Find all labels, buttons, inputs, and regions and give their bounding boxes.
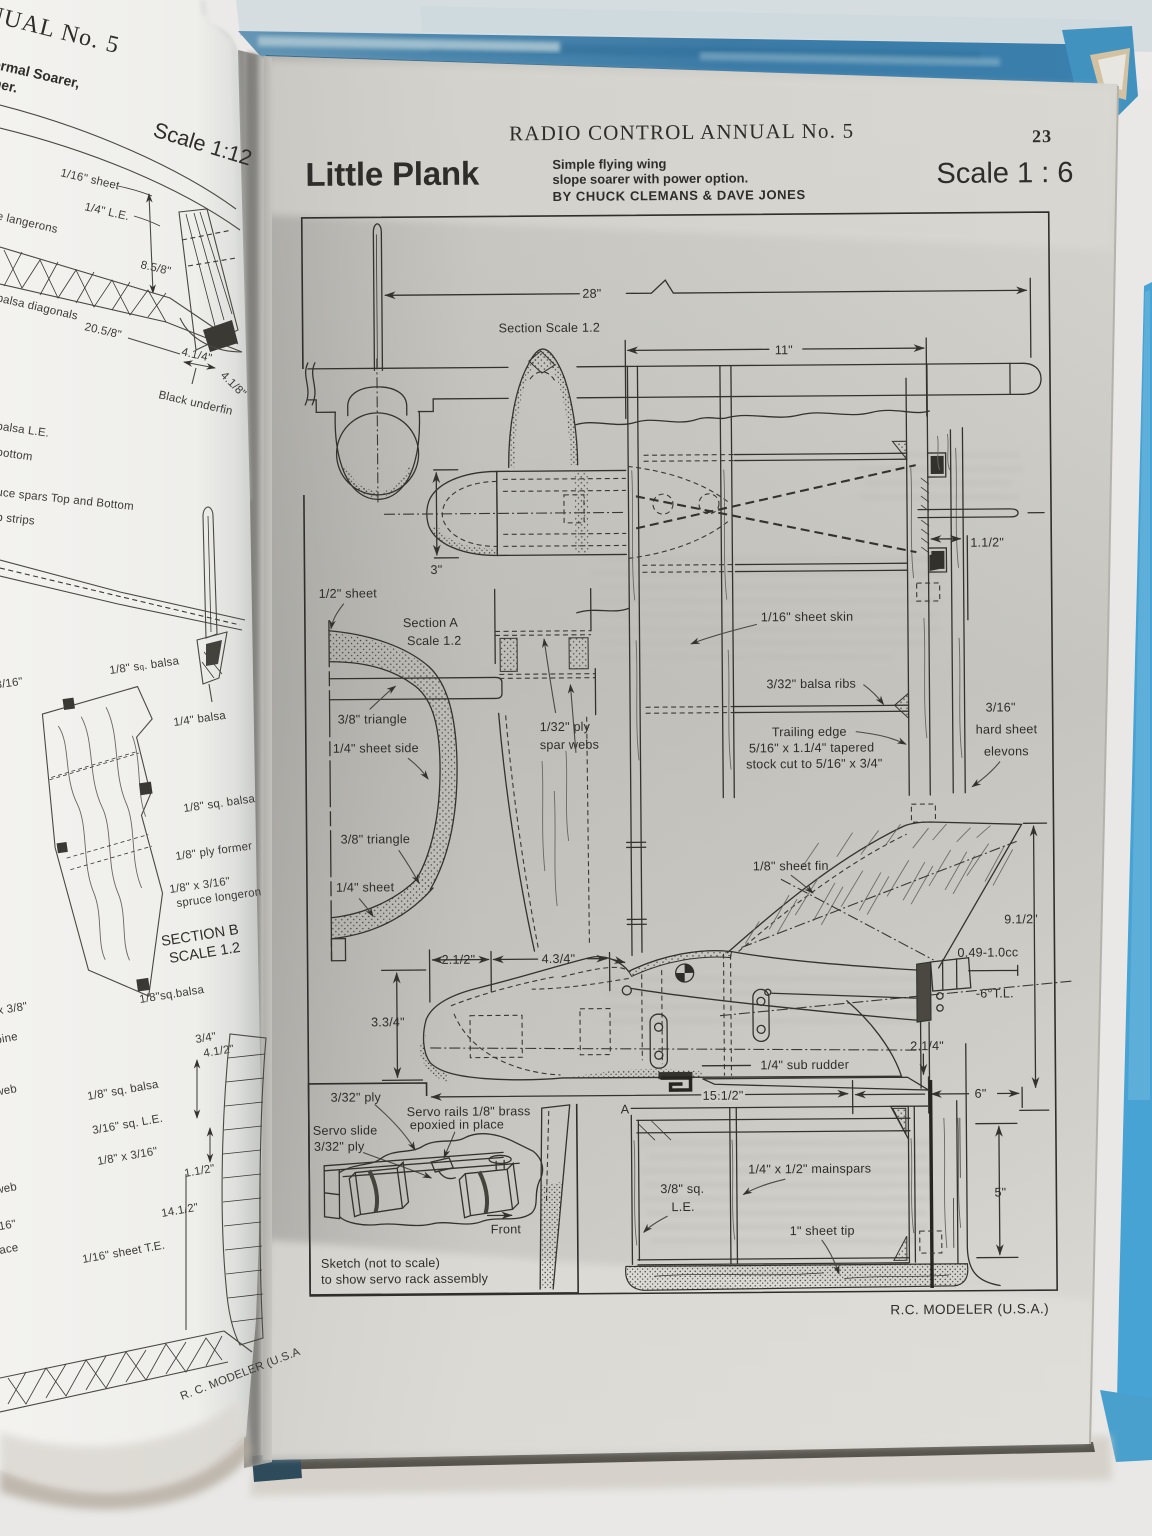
svg-text:2.1/4": 2.1/4" (910, 1039, 944, 1053)
svg-text:Little Plank: Little Plank (305, 155, 480, 193)
svg-text:3/8" triangle: 3/8" triangle (338, 712, 407, 727)
svg-text:1/4" sheet side: 1/4" sheet side (333, 741, 419, 756)
svg-text:Section Scale 1.2: Section Scale 1.2 (499, 321, 601, 336)
svg-text:5": 5" (994, 1185, 1006, 1199)
svg-text:A: A (621, 1102, 630, 1116)
svg-text:RADIO CONTROL ANNUAL No. 5: RADIO CONTROL ANNUAL No. 5 (509, 119, 854, 146)
svg-text:epoxied in place: epoxied in place (410, 1117, 504, 1132)
svg-text:Sketch (not to scale): Sketch (not to scale) (321, 1256, 440, 1271)
svg-text:Trailing edge: Trailing edge (772, 725, 847, 740)
svg-text:Servo slide: Servo slide (313, 1123, 378, 1138)
svg-text:1/4" sheet: 1/4" sheet (336, 880, 395, 894)
svg-text:R.C. MODELER (U.S.A.): R.C. MODELER (U.S.A.) (890, 1301, 1049, 1317)
svg-text:Front: Front (491, 1222, 522, 1236)
svg-text:15.1/2": 15.1/2" (703, 1089, 744, 1103)
svg-text:1/32" ply: 1/32" ply (540, 720, 591, 734)
svg-text:1/4" sub rudder: 1/4" sub rudder (760, 1058, 849, 1073)
svg-text:1/16" sheet skin: 1/16" sheet skin (761, 610, 853, 625)
svg-text:23: 23 (1032, 126, 1052, 146)
svg-text:3/8" triangle: 3/8" triangle (341, 832, 410, 847)
svg-text:1" sheet tip: 1" sheet tip (790, 1224, 855, 1239)
svg-text:L.E.: L.E. (671, 1200, 694, 1214)
svg-text:6": 6" (975, 1087, 987, 1101)
svg-text:hard sheet: hard sheet (976, 722, 1038, 736)
svg-text:Scale 1.2: Scale 1.2 (407, 634, 461, 648)
svg-text:elevons: elevons (984, 744, 1029, 758)
svg-text:2.1/2": 2.1/2" (442, 953, 476, 967)
svg-text:1/4" x 1/2" mainspars: 1/4" x 1/2" mainspars (748, 1162, 871, 1177)
svg-text:3/32" ply: 3/32" ply (314, 1139, 365, 1153)
svg-text:28": 28" (582, 287, 601, 301)
svg-text:BY CHUCK CLEMANS & DAVE JONES: BY CHUCK CLEMANS & DAVE JONES (553, 187, 806, 204)
svg-text:Simple flying wing: Simple flying wing (552, 156, 666, 172)
svg-text:1/8" sheet fin: 1/8" sheet fin (753, 859, 829, 874)
svg-text:Section A: Section A (403, 616, 459, 630)
svg-text:3/32" ply: 3/32" ply (331, 1090, 382, 1104)
svg-text:3/32" balsa ribs: 3/32" balsa ribs (766, 677, 856, 692)
svg-text:Scale 1 : 6: Scale 1 : 6 (936, 157, 1073, 190)
svg-text:3/16": 3/16" (986, 700, 1016, 714)
svg-text:3/8" sq.: 3/8" sq. (660, 1182, 704, 1196)
svg-text:1/2" sheet: 1/2" sheet (319, 586, 378, 600)
svg-text:9.1/2": 9.1/2" (1004, 912, 1038, 926)
svg-text:slope soarer with power option: slope soarer with power option. (552, 170, 748, 187)
svg-text:stock cut to 5/16" x 3/4": stock cut to 5/16" x 3/4" (746, 756, 883, 771)
svg-text:spar webs: spar webs (540, 738, 599, 752)
svg-text:11": 11" (775, 343, 793, 357)
svg-text:4.3/4": 4.3/4" (542, 952, 576, 966)
svg-text:to show servo rack assembly: to show servo rack assembly (321, 1272, 489, 1287)
svg-text:1.1/2": 1.1/2" (970, 535, 1004, 549)
svg-text:3": 3" (430, 563, 442, 577)
svg-text:5/16" x 1.1/4" tapered: 5/16" x 1.1/4" tapered (749, 740, 874, 755)
svg-text:3.3/4": 3.3/4" (371, 1015, 405, 1029)
